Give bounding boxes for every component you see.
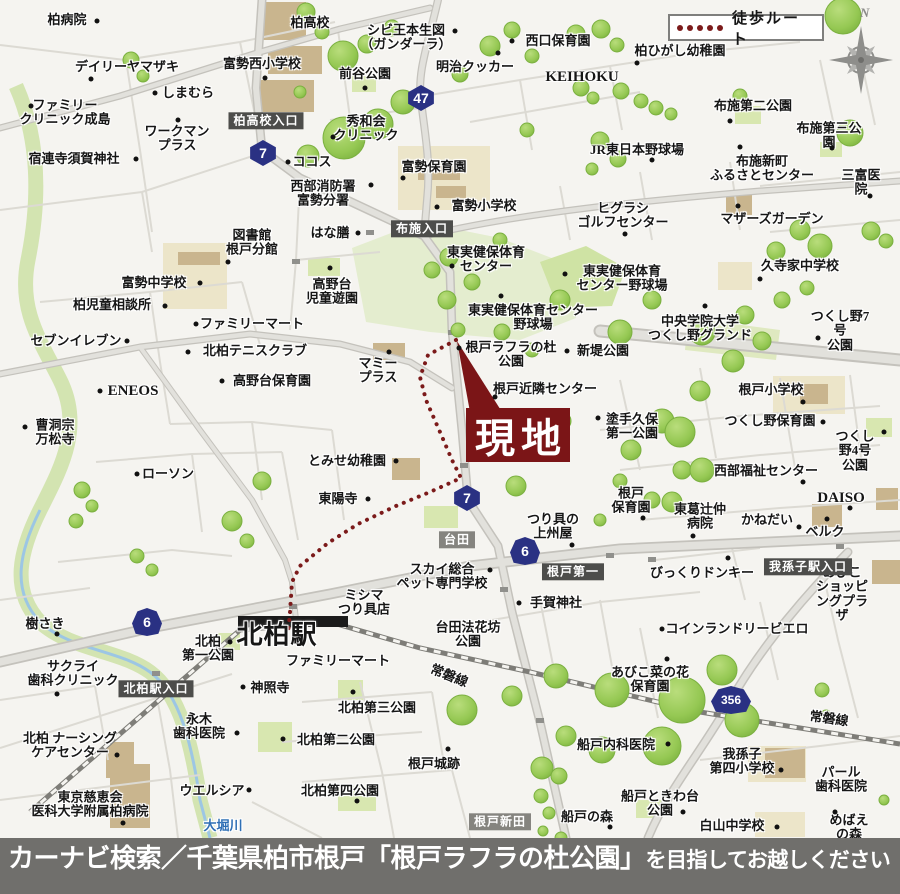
poi-dot [29,104,34,109]
poi-dot [153,91,158,96]
poi-dot [517,601,522,606]
poi-dot [666,742,671,747]
map-label: 西部消防署 富勢分署 [290,180,355,209]
map-label: あびこ菜の花 保育園 [611,666,689,695]
map-label: しまむら [162,86,214,100]
map-label: 柏ひがし幼稚園 [634,44,725,58]
poi-dot [681,810,686,815]
map-label: 我孫子 第四小学校 [709,748,774,777]
map-label: 図書館 根戸分館 [226,229,278,258]
poi-dot [115,753,120,758]
map-label: 前谷公園 [339,67,391,81]
map-label: 明治クッカー [436,60,514,74]
poi-dot [135,472,140,477]
map-label: KEIHOKU [545,69,618,86]
map-label: ENEOS [108,383,159,400]
caption-suffix-text: を目指してお越しください [646,844,891,874]
map-label: 高野台保育園 [233,374,311,388]
map-label: 高野台 児童遊園 [306,278,358,307]
map-label: つり具の 上州屋 [527,513,579,542]
map-label: 布施新町 ふるさとセンター [710,155,814,184]
poi-dot [565,349,570,354]
map-label: 新堤公園 [577,344,629,358]
map-label: つくし野7号 公園 [810,310,870,353]
station-label: 北柏駅 [236,622,317,651]
poi-dot [736,204,741,209]
poi-dot [55,632,60,637]
map-label: ミシマ つり具店 [338,589,390,618]
poi-dot [801,480,806,485]
map-label: 宿連寺須賀神社 [28,152,119,166]
map-label: 富勢小学校 [451,199,516,213]
map-label: 神照寺 [250,681,289,695]
poi-dot [821,420,826,425]
site-marker: 現地 [466,408,570,462]
compass-rose-icon [826,18,896,104]
poi-dot [394,459,399,464]
poi-dot [176,118,181,123]
poi-dot [194,322,199,327]
map-label: 北柏第二公園 [297,733,375,747]
road-badge: 根戸新田 [469,813,531,830]
map-label: 東実健保体育センター 野球場 [468,304,598,333]
poi-dot [833,810,838,815]
poi-dot [95,19,100,24]
map-label: 東実健保体育 センター [447,246,525,275]
map-label: とみせ幼稚園 [308,454,386,468]
map-label: 根戸 保育園 [611,487,650,516]
caption-bar: カーナビ検索／千葉県柏市根戸「根戸ラフラの杜公園」を目指してお越しください [0,838,900,894]
poi-dot [848,506,853,511]
poi-dot [726,556,731,561]
poi-dot [563,272,568,277]
poi-dot [446,747,451,752]
caption-main-text: カーナビ検索／千葉県柏市根戸「根戸ラフラの杜公園」 [8,838,646,875]
poi-dot [825,517,830,522]
poi-dot [328,266,333,271]
poi-dot [401,176,406,181]
poi-dot [435,205,440,210]
map-label: 船戸ときわ台 公園 [621,790,699,819]
map-label: ココス [292,155,331,169]
poi-dot [134,157,139,162]
map-label: ウエルシア [179,784,244,798]
poi-dot [235,731,240,736]
river-label: 大堀川 [203,819,242,833]
map-label: 白山中学校 [699,819,764,833]
poi-dot [728,119,733,124]
poi-dot [488,568,493,573]
map-label: パール 歯科医院 [815,766,867,795]
road-badge: 柏高校入口 [228,112,303,129]
map-label: JR東日本野球場 [590,143,684,157]
map-label: びっくりドンキー [650,566,754,580]
poi-dot [775,825,780,830]
poi-dot [635,61,640,66]
poi-dot [228,640,233,645]
map-canvas: 柏病院デイリーヤマザキしまむらファミリー クリニック成島ワークマン プラス宿連寺… [0,0,900,838]
map-label: 北柏テニスクラブ [203,344,307,358]
map-label: 西部福祉センター [714,464,818,478]
map-label: コインランドリービエロ [665,622,808,636]
map-label: 永木 歯科医院 [173,713,225,742]
poi-dot [830,146,835,151]
site-marker-label: 現地 [475,406,567,464]
poi-dot [660,627,665,632]
map-label: ベルク [805,525,844,539]
route-dots-icon [677,25,723,31]
map-label: 東陽寺 [318,492,357,506]
map-label: 根戸ラフラの杜 公園 [465,341,556,370]
poi-dot [570,543,575,548]
poi-dot [356,231,361,236]
poi-dot [596,416,601,421]
poi-dot [331,135,336,140]
map-label: マミー プラス [358,357,397,386]
poi-dot [198,281,203,286]
poi-dot [369,183,374,188]
poi-dot [281,737,286,742]
map-label: 根戸小学校 [738,383,803,397]
poi-dot [363,86,368,91]
poi-dot [641,516,646,521]
map-label: つくし野保育園 [724,414,815,428]
map-label: デイリーヤマザキ [75,60,179,74]
map-label: 樹さき [25,617,64,631]
map-label: 柏高校 [290,16,329,30]
map-label: ヒグラシ ゴルフセンター [577,202,668,231]
map-label: 富勢保育園 [401,160,466,174]
road-badge: 布施入口 [391,220,453,237]
map-label: 船戸の森 [561,810,613,824]
poi-dot [286,160,291,165]
map-label: 台田法花坊 公園 [435,621,500,650]
map-label: 北柏 第一公園 [182,635,234,664]
map-label: はな膳 [310,226,349,240]
poi-dot [703,304,708,309]
legend-label: 徒歩ルート [732,7,815,49]
map-label: サクライ 歯科クリニック [27,660,118,689]
map-label: ファミリー クリニック成島 [19,99,110,128]
map-label: 秀和会 クリニック [333,115,398,144]
map-label: セブンイレブン [30,334,121,348]
poi-dot [23,425,28,430]
map-label: 手賀神社 [530,596,582,610]
poi-dot [226,260,231,265]
poi-dot [98,389,103,394]
poi-dot [779,768,784,773]
map-label: 三富医院 [842,169,881,198]
walk-route-legend: 徒歩ルート [668,14,824,41]
map-label: 西口保育園 [525,34,590,48]
poi-dot [121,821,126,826]
map-label: ファミリーマート [286,654,390,668]
road-badge: 根戸第一 [542,563,604,580]
map-label: かねだい [741,513,793,527]
map-label: 北柏 ナーシング ケアセンター [23,732,117,761]
poi-dot [355,799,360,804]
map-label: シビ王本生図 （ガンダーラ） [360,24,451,53]
map-label: ファミリーマート [200,317,304,331]
poi-dot [220,379,225,384]
map-label: ワークマン プラス [144,125,209,154]
map-label: 柏児童相談所 [73,298,151,312]
map-label: つくし野4号 公園 [833,430,878,473]
map-label: 根戸近隣センター [493,382,597,396]
poi-dot [758,277,763,282]
poi-dot [263,76,268,81]
poi-dot [457,346,462,351]
poi-dot [882,430,887,435]
map-label: 北柏第三公園 [338,701,416,715]
poi-dot [453,29,458,34]
poi-dot [496,51,501,56]
poi-dot [623,232,628,237]
poi-dot [868,194,873,199]
poi-dot [493,395,498,400]
map-label: 根戸城跡 [408,757,460,771]
poi-dot [241,685,246,690]
map-label: 東実健保体育 センター野球場 [576,265,667,294]
poi-dot [186,350,191,355]
poi-dot [801,400,806,405]
map-label: 船戸内科医院 [577,738,655,752]
road-badge: 北柏駅入口 [118,680,193,697]
poi-dot [816,336,821,341]
map-label: スカイ総合 ペット専門学校 [396,563,487,592]
map-label: 東葛辻仲 病院 [674,503,726,532]
poi-dot [738,145,743,150]
poi-dot [163,304,168,309]
poi-dot [691,534,696,539]
poi-dot [89,77,94,82]
poi-dot [510,39,515,44]
poi-dot [608,825,613,830]
poi-dot [351,690,356,695]
poi-dot [125,339,130,344]
map-label: 塗手久保 第一公園 [606,413,658,442]
map-label: 北柏第四公園 [301,784,379,798]
map-screenshot: 柏病院デイリーヤマザキしまむらファミリー クリニック成島ワークマン プラス宿連寺… [0,0,900,894]
road-badge: 台田 [439,531,475,548]
map-label: 東京慈恵会 医科大学附属柏病院 [31,791,148,820]
poi-dot [55,692,60,697]
map-label: 久寺家中学校 [761,259,839,273]
poi-dot [387,350,392,355]
map-label: 曹洞宗 万松寺 [35,419,74,448]
map-label: 柏病院 [47,13,86,27]
road-badge: 我孫子駅入口 [764,558,852,575]
map-label: 中央学院大学 つくし野グランド [648,315,752,344]
map-label: マザーズガーデン [720,212,823,226]
map-label: 富勢中学校 [121,276,186,290]
poi-dot [797,525,802,530]
map-label: 布施第二公園 [714,99,792,113]
poi-dot [450,264,455,269]
map-label: ローソン [142,467,194,481]
poi-dot [247,788,252,793]
poi-dot [499,294,504,299]
poi-dot [665,657,670,662]
poi-dot [650,158,655,163]
map-label: DAISO [817,490,865,507]
map-label: 富勢西小学校 [223,57,301,71]
poi-dot [366,497,371,502]
